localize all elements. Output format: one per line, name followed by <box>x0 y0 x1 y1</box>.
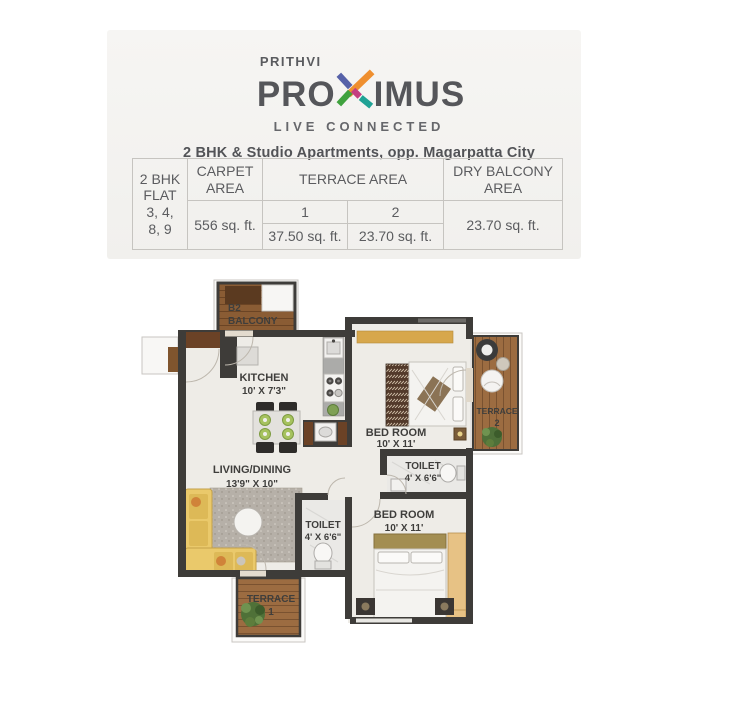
brand-proximus: PRO IMUS <box>257 69 465 112</box>
brand-x-icon <box>334 69 376 109</box>
living-label: LIVING/DINING <box>213 464 291 476</box>
bedroom1-rug <box>386 364 410 426</box>
kitchen-dims: 10' X 7'3" <box>242 386 286 397</box>
bedroom2-dims: 10' X 11' <box>385 523 424 534</box>
terrace2-label-2: 2 <box>494 418 499 428</box>
brand-tagline: LIVE CONNECTED <box>274 119 445 134</box>
terrace1-label-1: TERRACE <box>247 594 296 605</box>
area-table: 2 BHK FLAT 3, 4, 8, 9 CARPET AREA TERRAC… <box>132 158 563 250</box>
carpet-area-value: 556 sq. ft. <box>188 201 263 250</box>
balcony-label-2: BALCONY <box>228 316 278 327</box>
counter-plant-icon <box>328 405 339 416</box>
flat-number-cell: 2 BHK FLAT 3, 4, 8, 9 <box>133 159 188 250</box>
brand-post: IMUS <box>374 75 466 114</box>
terrace-area-header: TERRACE AREA <box>263 159 444 201</box>
terrace-1-label: 1 <box>263 201 348 224</box>
dry-balcony-header: DRY BALCONY AREA <box>444 159 563 201</box>
brand-logo: PRITHVI PRO IMUS LIVE CONNECTED 2 BHK & … <box>120 54 598 161</box>
bedroom1-wardrobe-ledge <box>357 331 453 343</box>
toilet2-dims: 4' X 6'6" <box>305 532 342 543</box>
terrace-2-value: 23.70 sq. ft. <box>348 224 444 250</box>
coffee-table-icon <box>234 508 262 536</box>
terrace-2-label: 2 <box>348 201 444 224</box>
terrace2-chair-dark-icon <box>476 339 498 361</box>
kitchen-label: KITCHEN <box>240 372 289 384</box>
toilet1-dims: 4' X 6'6" <box>405 473 442 484</box>
terrace-2-deck: TERRACE 2 <box>471 333 522 454</box>
bedroom2-label: BED ROOM <box>374 509 435 521</box>
stove-icon <box>324 374 344 402</box>
balcony-b2: B2 BALCONY <box>214 280 298 337</box>
floor-plan-svg: B2 BALCONY TERRACE 1 TERRACE <box>140 270 566 666</box>
bedroom1-label: BED ROOM <box>366 427 427 439</box>
toilet1-label: TOILET <box>405 461 440 472</box>
toilet2-label: TOILET <box>305 520 340 531</box>
plant-icon <box>482 427 502 447</box>
terrace2-chair-white-icon <box>481 370 503 392</box>
flyer-page: { "brand": { "name_top": "PRITHVI", "nam… <box>0 0 756 706</box>
terrace2-table-icon <box>497 358 510 371</box>
brand-pre: PRO <box>257 75 336 114</box>
carpet-area-header: CARPET AREA <box>188 159 263 201</box>
terrace1-label-2: 1 <box>268 607 274 618</box>
floor-plan: B2 BALCONY TERRACE 1 TERRACE <box>140 270 566 671</box>
living-dims: 13'9" X 10" <box>226 479 278 490</box>
brand-lockup: PRITHVI PRO IMUS <box>257 54 465 112</box>
kitchen-counter <box>323 337 344 416</box>
terrace-1-value: 37.50 sq. ft. <box>263 224 348 250</box>
terrace2-label-1: TERRACE <box>476 406 517 416</box>
bedroom1-dims: 10' X 11' <box>377 439 416 450</box>
brand-prithvi: PRITHVI <box>260 54 465 69</box>
dry-balcony-value: 23.70 sq. ft. <box>444 201 563 250</box>
balcony-label-1: B2 <box>228 303 241 314</box>
terrace-1-deck: TERRACE 1 <box>232 578 305 642</box>
